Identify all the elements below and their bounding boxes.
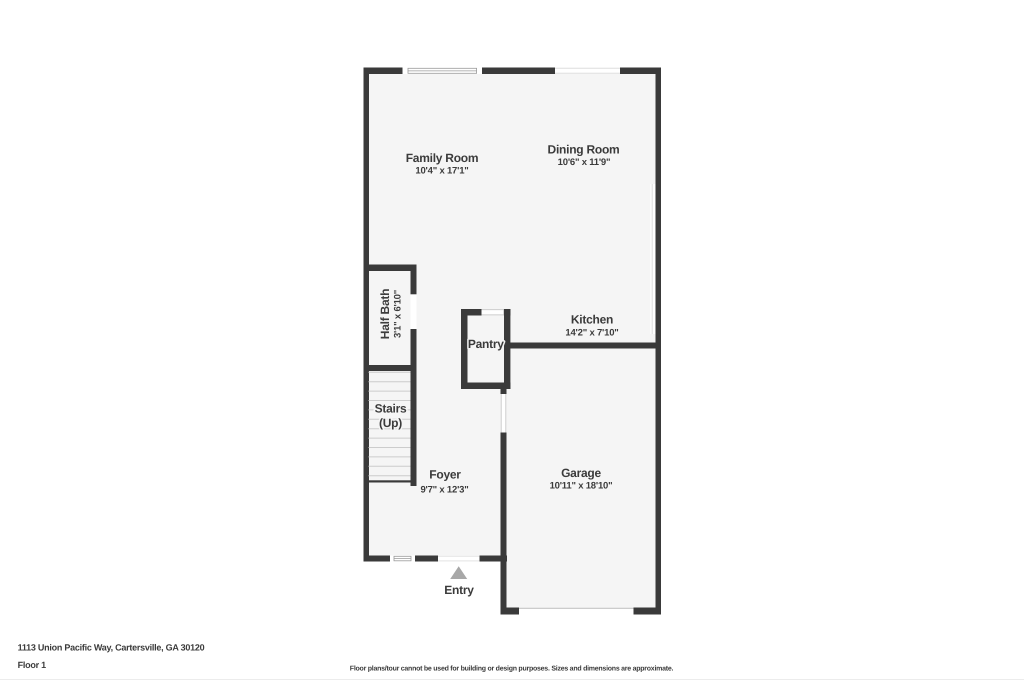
svg-text:3'1" x 6'10": 3'1" x 6'10" — [393, 290, 404, 338]
svg-text:Dining Room: Dining Room — [548, 143, 620, 157]
svg-text:10'6" x 11'9": 10'6" x 11'9" — [558, 157, 611, 168]
svg-text:Half Bath: Half Bath — [378, 289, 392, 339]
svg-text:Floor plans/tour cannot be use: Floor plans/tour cannot be used for buil… — [350, 665, 674, 673]
svg-text:Family Room: Family Room — [406, 151, 479, 165]
svg-text:Pantry: Pantry — [468, 337, 504, 351]
svg-text:(Up): (Up) — [379, 416, 402, 430]
svg-text:Floor 1: Floor 1 — [18, 660, 46, 670]
svg-text:Stairs: Stairs — [375, 402, 407, 416]
svg-text:Garage: Garage — [561, 466, 601, 480]
svg-text:9'7" x 12'3": 9'7" x 12'3" — [420, 484, 468, 495]
svg-text:Entry: Entry — [444, 583, 474, 597]
svg-text:Kitchen: Kitchen — [571, 313, 613, 327]
svg-text:14'2" x 7'10": 14'2" x 7'10" — [565, 327, 618, 338]
svg-text:10'4" x 17'1": 10'4" x 17'1" — [415, 166, 468, 177]
svg-text:10'11" x 18'10": 10'11" x 18'10" — [550, 481, 613, 492]
svg-text:1113 Union Pacific Way, Carter: 1113 Union Pacific Way, Cartersville, GA… — [18, 643, 205, 653]
svg-text:Foyer: Foyer — [429, 468, 461, 482]
